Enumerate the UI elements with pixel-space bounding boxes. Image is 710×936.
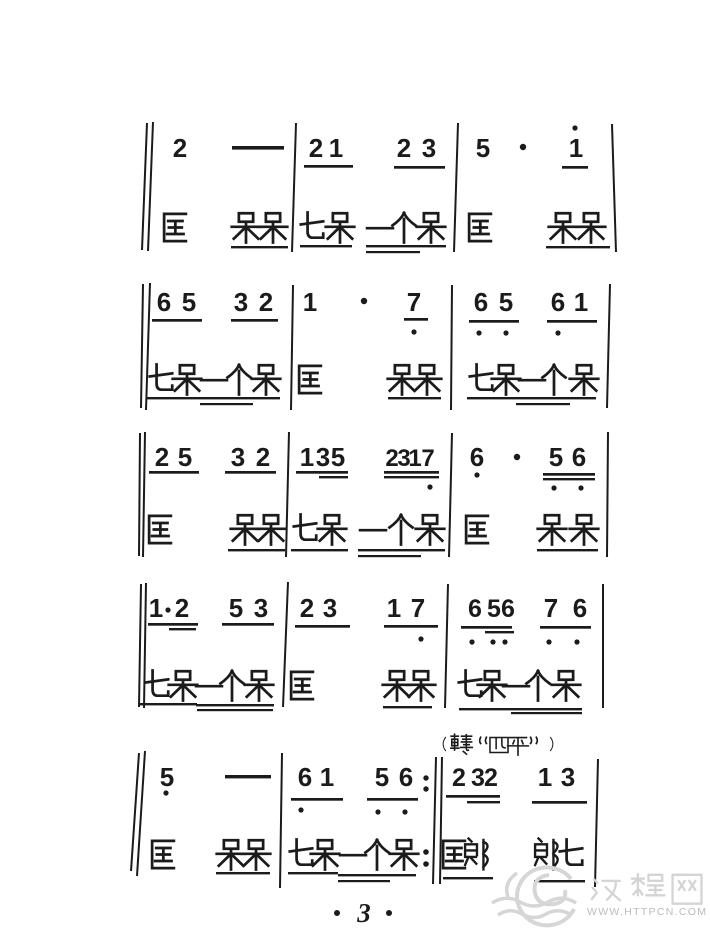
svg-text:2: 2 <box>259 287 273 317</box>
svg-text:5: 5 <box>182 287 196 317</box>
svg-text:1: 1 <box>387 593 401 623</box>
svg-text:5: 5 <box>375 762 389 792</box>
svg-text:2: 2 <box>397 133 411 163</box>
svg-text:5: 5 <box>229 593 243 623</box>
svg-text:3: 3 <box>422 133 436 163</box>
svg-text:5: 5 <box>160 762 174 792</box>
svg-text:2: 2 <box>256 442 270 472</box>
svg-text:1: 1 <box>320 762 334 792</box>
svg-text:2: 2 <box>300 593 314 623</box>
svg-text:2: 2 <box>175 593 189 623</box>
svg-text:2: 2 <box>155 442 169 472</box>
svg-text:5: 5 <box>549 442 563 472</box>
svg-text:6: 6 <box>474 287 488 317</box>
svg-text:1: 1 <box>574 287 588 317</box>
svg-text:6: 6 <box>572 442 586 472</box>
svg-text:2: 2 <box>452 764 466 792</box>
svg-text:6: 6 <box>551 287 565 317</box>
svg-text:1: 1 <box>538 762 552 792</box>
svg-text:1: 1 <box>408 445 421 472</box>
svg-text:6: 6 <box>501 595 515 623</box>
svg-text:3: 3 <box>471 764 485 792</box>
svg-text:7: 7 <box>407 287 421 317</box>
svg-text:6: 6 <box>399 762 413 792</box>
svg-text:6: 6 <box>468 595 482 623</box>
svg-text:1: 1 <box>300 442 314 472</box>
svg-text:WWW.HTTPCN.COM: WWW.HTTPCN.COM <box>587 906 707 918</box>
svg-text:3: 3 <box>316 442 330 472</box>
svg-text:5: 5 <box>178 442 192 472</box>
svg-text:3: 3 <box>561 762 575 792</box>
svg-text:5: 5 <box>499 287 513 317</box>
svg-text:6: 6 <box>298 762 312 792</box>
svg-text:7: 7 <box>544 593 558 623</box>
svg-text:3: 3 <box>234 287 248 317</box>
svg-text:6: 6 <box>573 593 587 623</box>
svg-text:6: 6 <box>157 287 171 317</box>
svg-text:5: 5 <box>487 595 501 623</box>
svg-text:7: 7 <box>411 593 425 623</box>
svg-text:3: 3 <box>254 593 268 623</box>
svg-text:3: 3 <box>356 898 371 928</box>
svg-text:1: 1 <box>329 133 343 163</box>
svg-text:3: 3 <box>231 442 245 472</box>
svg-text:2: 2 <box>309 133 323 163</box>
svg-text:6: 6 <box>470 442 484 472</box>
svg-text:2: 2 <box>173 133 187 163</box>
svg-text:1: 1 <box>149 593 163 623</box>
svg-text:1: 1 <box>569 133 583 163</box>
svg-text:1: 1 <box>303 287 317 317</box>
svg-text:2: 2 <box>484 764 498 792</box>
svg-text:3: 3 <box>323 593 337 623</box>
svg-text:5: 5 <box>331 442 345 472</box>
svg-text:5: 5 <box>476 133 490 163</box>
svg-text:7: 7 <box>421 445 434 472</box>
